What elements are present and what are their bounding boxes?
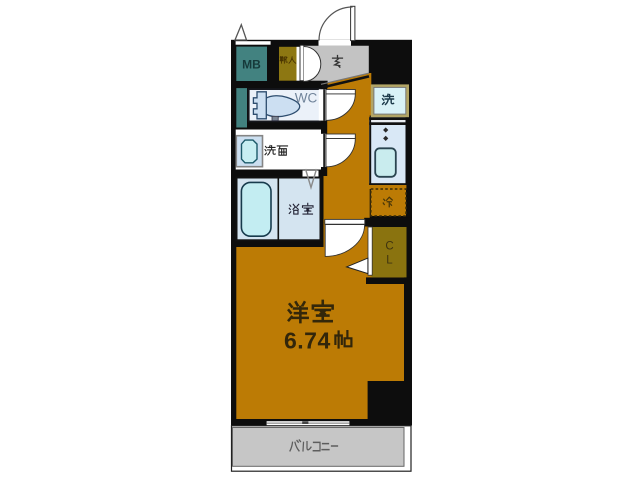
svg-text:WC: WC [295, 91, 318, 106]
svg-text:MB: MB [242, 58, 261, 72]
svg-text:C: C [385, 241, 393, 253]
svg-text:6.74: 6.74 [284, 328, 331, 354]
svg-text:L: L [386, 255, 393, 267]
